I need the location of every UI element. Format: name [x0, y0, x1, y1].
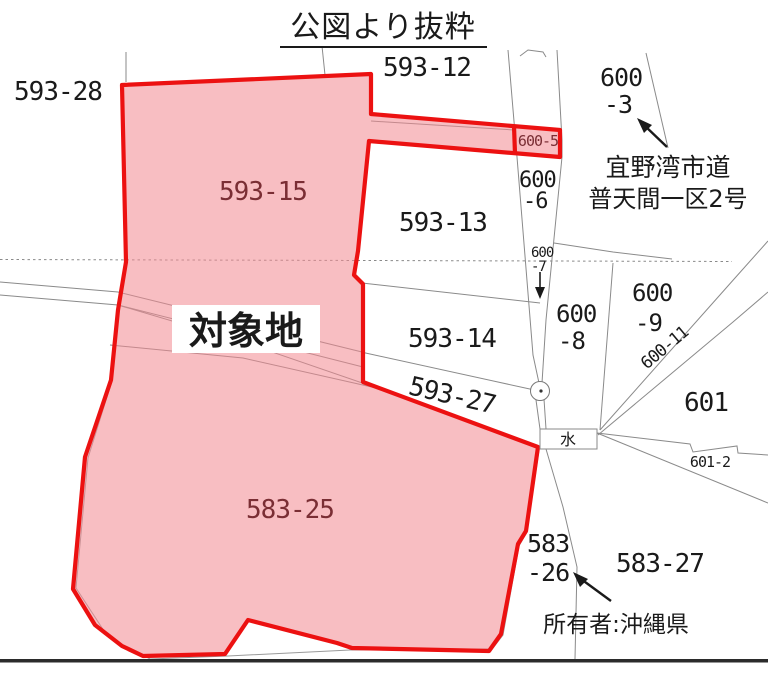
parcel-600-7-arrow-head-icon [535, 287, 545, 299]
boundary-600-9-top [554, 243, 672, 259]
boundary-593-13-593-14 [362, 283, 540, 303]
label-600-9-line2: -9 [635, 309, 662, 337]
label-601: 601 [684, 388, 728, 418]
boundary-stub-593-12 [322, 46, 325, 75]
label-600-5: 600-5 [518, 132, 558, 150]
target-parcel-fill [73, 74, 560, 656]
label-583-25: 583-25 [246, 495, 334, 525]
owner-arrow-head-icon [573, 572, 588, 587]
label-600-8-line1: 600 [556, 300, 596, 328]
label-593-14: 593-14 [408, 324, 496, 354]
page-title: 公図より抜粋 [290, 10, 475, 45]
owner-arrow-line [581, 579, 611, 601]
road-wedge-below-circle [536, 399, 546, 429]
label-583-26-line2: -26 [527, 558, 569, 587]
parcel-600-5-divider [514, 126, 515, 154]
label-593-28: 593-28 [14, 77, 102, 107]
label-593-15: 593-15 [219, 177, 307, 207]
map-symbols: 水 [531, 382, 598, 450]
map-bottom-border [0, 659, 768, 663]
label-593-12: 593-12 [383, 53, 471, 83]
boundary-600-3 [646, 53, 668, 148]
map-title-group: 公図より抜粋 [280, 10, 487, 47]
dotted-sheet-line [0, 260, 732, 262]
label-600-7-line2: -7 [531, 259, 546, 275]
label-601-2: 601-2 [690, 453, 730, 471]
cadastral-map: 水 公図より抜粋 593-12 593-28 593-15 600-5 600 … [0, 0, 768, 674]
cadastral-map-canvas: 水 公図より抜粋 593-12 593-28 593-15 600-5 600 … [0, 0, 768, 674]
water-label: 水 [560, 430, 576, 449]
owner-note: 所有者:沖縄県 [543, 612, 689, 638]
target-parcel-highlight [73, 74, 560, 656]
label-600-9-line1: 600 [632, 279, 672, 307]
label-593-13: 593-13 [399, 208, 487, 238]
label-583-27: 583-27 [616, 549, 704, 579]
label-600-3-line1: 600 [600, 63, 642, 92]
label-600-6-line2: -6 [523, 189, 548, 214]
target-site-label: 対象地 [189, 308, 303, 353]
road-name-line2: 普天間一区2号 [588, 185, 747, 213]
survey-point-dot [539, 389, 542, 392]
road-name-line1: 宜野湾市道 [605, 153, 730, 182]
road-wedge-left-line [508, 50, 539, 383]
boundary-600-8-600-9 [600, 263, 613, 430]
map-edge-mark [520, 50, 546, 57]
label-600-8-line2: -8 [558, 327, 585, 355]
target-site-callout: 対象地 [172, 305, 320, 353]
label-583-26-line1: 583 [527, 529, 569, 558]
boundary-600-11-lower [598, 292, 768, 435]
label-600-3-line2: -3 [604, 90, 632, 119]
